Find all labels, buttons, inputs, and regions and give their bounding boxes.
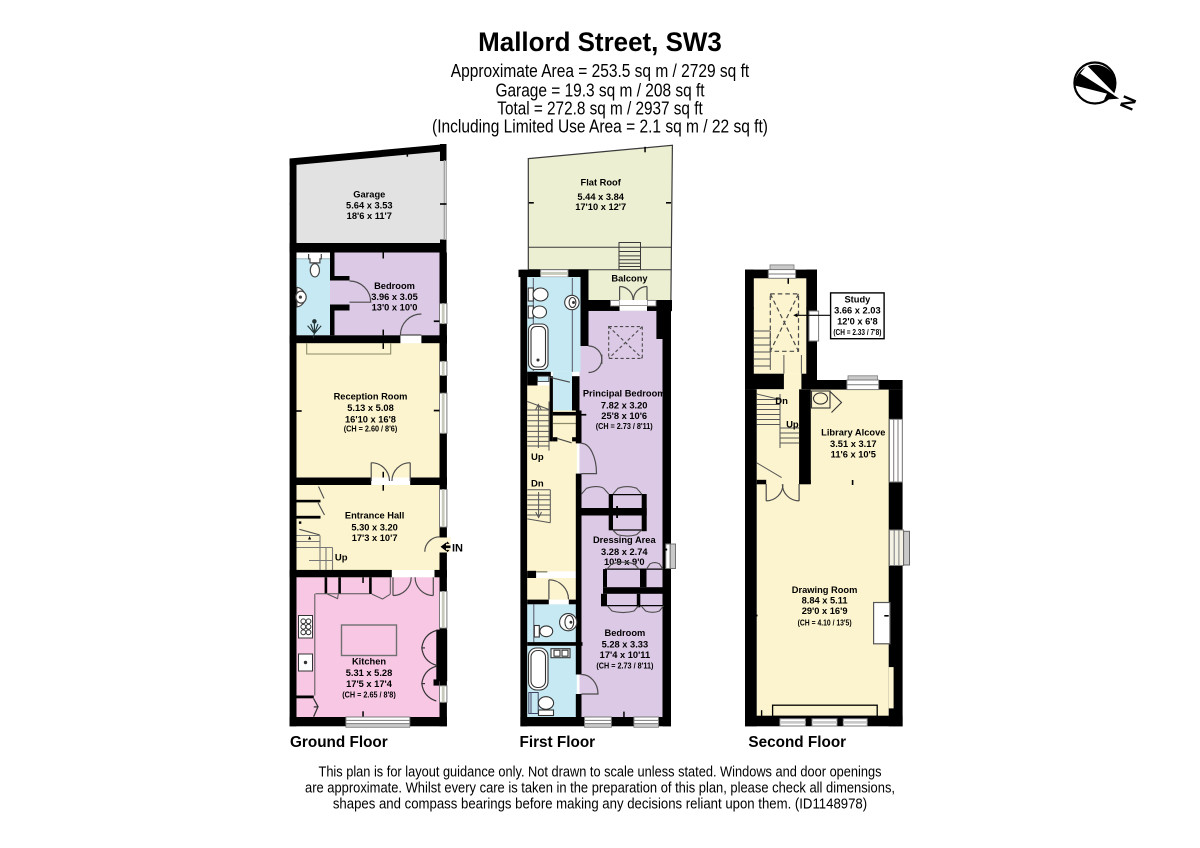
- svg-text:Study: Study: [844, 295, 871, 305]
- svg-text:Garage: Garage: [353, 190, 385, 200]
- svg-text:(CH = 2.60 / 8'6): (CH = 2.60 / 8'6): [344, 424, 398, 433]
- svg-text:Drawing Room: Drawing Room: [792, 585, 858, 595]
- svg-text:First Floor: First Floor: [520, 734, 596, 751]
- svg-text:5.30 x 3.20: 5.30 x 3.20: [351, 523, 398, 533]
- svg-text:Entrance Hall: Entrance Hall: [345, 511, 404, 521]
- svg-text:12'0 x 6'8: 12'0 x 6'8: [837, 317, 878, 327]
- svg-text:Dn: Dn: [531, 479, 544, 490]
- svg-text:3.51 x 3.17: 3.51 x 3.17: [830, 439, 877, 449]
- svg-text:Approximate Area = 253.5 sq m: Approximate Area = 253.5 sq m / 2729 sq …: [451, 60, 749, 81]
- svg-text:5.64 x 3.53: 5.64 x 3.53: [346, 200, 393, 210]
- svg-text:(CH = 4.10 / 13'5): (CH = 4.10 / 13'5): [798, 618, 852, 627]
- svg-text:11'6 x 10'5: 11'6 x 10'5: [831, 449, 876, 459]
- svg-text:Up: Up: [335, 553, 348, 564]
- svg-text:Kitchen: Kitchen: [352, 657, 386, 667]
- svg-text:3.96 x 3.05: 3.96 x 3.05: [371, 292, 418, 302]
- svg-text:Dressing Area: Dressing Area: [593, 535, 657, 545]
- svg-text:17'4 x 10'11: 17'4 x 10'11: [600, 650, 650, 660]
- svg-text:Ground Floor: Ground Floor: [290, 734, 388, 751]
- svg-text:Up: Up: [786, 420, 799, 431]
- svg-text:5.44 x 3.84: 5.44 x 3.84: [577, 192, 624, 202]
- svg-text:(CH = 2.73 / 8'11): (CH = 2.73 / 8'11): [596, 422, 653, 431]
- svg-text:Principal Bedroom: Principal Bedroom: [583, 389, 666, 399]
- svg-text:17'5 x 17'4: 17'5 x 17'4: [346, 679, 393, 689]
- svg-text:shapes and compass bearings be: shapes and compass bearings before makin…: [333, 797, 867, 813]
- svg-text:IN: IN: [452, 542, 463, 554]
- svg-text:(CH = 2.65 / 8'8): (CH = 2.65 / 8'8): [342, 691, 396, 700]
- svg-text:8.84 x 5.11: 8.84 x 5.11: [802, 595, 848, 605]
- svg-text:5.28 x 3.33: 5.28 x 3.33: [602, 640, 649, 650]
- svg-text:are approximate. Whilst every: are approximate. Whilst every care is ta…: [305, 781, 895, 797]
- svg-text:This plan is for layout guidan: This plan is for layout guidance only. N…: [319, 765, 882, 781]
- svg-text:7.82 x 3.20: 7.82 x 3.20: [601, 401, 648, 411]
- svg-text:(CH = 2.33 / 7'8): (CH = 2.33 / 7'8): [833, 328, 881, 337]
- svg-text:3.28 x 2.74: 3.28 x 2.74: [601, 547, 648, 557]
- svg-text:(Including Limited Use Area =: (Including Limited Use Area = 2.1 sq m /…: [432, 115, 768, 136]
- svg-text:Library Alcove: Library Alcove: [821, 428, 885, 438]
- svg-text:Bedroom: Bedroom: [374, 281, 415, 291]
- svg-text:Reception Room: Reception Room: [334, 392, 408, 402]
- svg-text:25'8 x 10'6: 25'8 x 10'6: [601, 411, 647, 421]
- svg-text:18'6 x 11'7: 18'6 x 11'7: [347, 211, 392, 221]
- svg-text:Bedroom: Bedroom: [604, 628, 645, 638]
- svg-text:17'10 x 12'7: 17'10 x 12'7: [575, 202, 626, 212]
- svg-text:16'10 x 16'8: 16'10 x 16'8: [345, 414, 396, 424]
- svg-text:Mallord Street, SW3: Mallord Street, SW3: [478, 27, 722, 57]
- svg-text:Up: Up: [531, 452, 544, 463]
- svg-text:Flat Roof: Flat Roof: [581, 178, 622, 188]
- svg-text:17'3 x 10'7: 17'3 x 10'7: [352, 533, 398, 543]
- svg-text:Balcony: Balcony: [611, 273, 648, 283]
- svg-text:5.31 x 5.28: 5.31 x 5.28: [346, 668, 393, 678]
- svg-text:3.66 x 2.03: 3.66 x 2.03: [834, 305, 881, 315]
- svg-text:29'0 x 16'9: 29'0 x 16'9: [802, 606, 848, 616]
- svg-text:13'0 x 10'0: 13'0 x 10'0: [372, 303, 418, 313]
- svg-text:(CH = 2.73 / 8'11): (CH = 2.73 / 8'11): [596, 662, 653, 671]
- svg-text:Dn: Dn: [775, 396, 788, 407]
- svg-text:5.13 x 5.08: 5.13 x 5.08: [347, 403, 394, 413]
- svg-text:Second Floor: Second Floor: [748, 734, 846, 751]
